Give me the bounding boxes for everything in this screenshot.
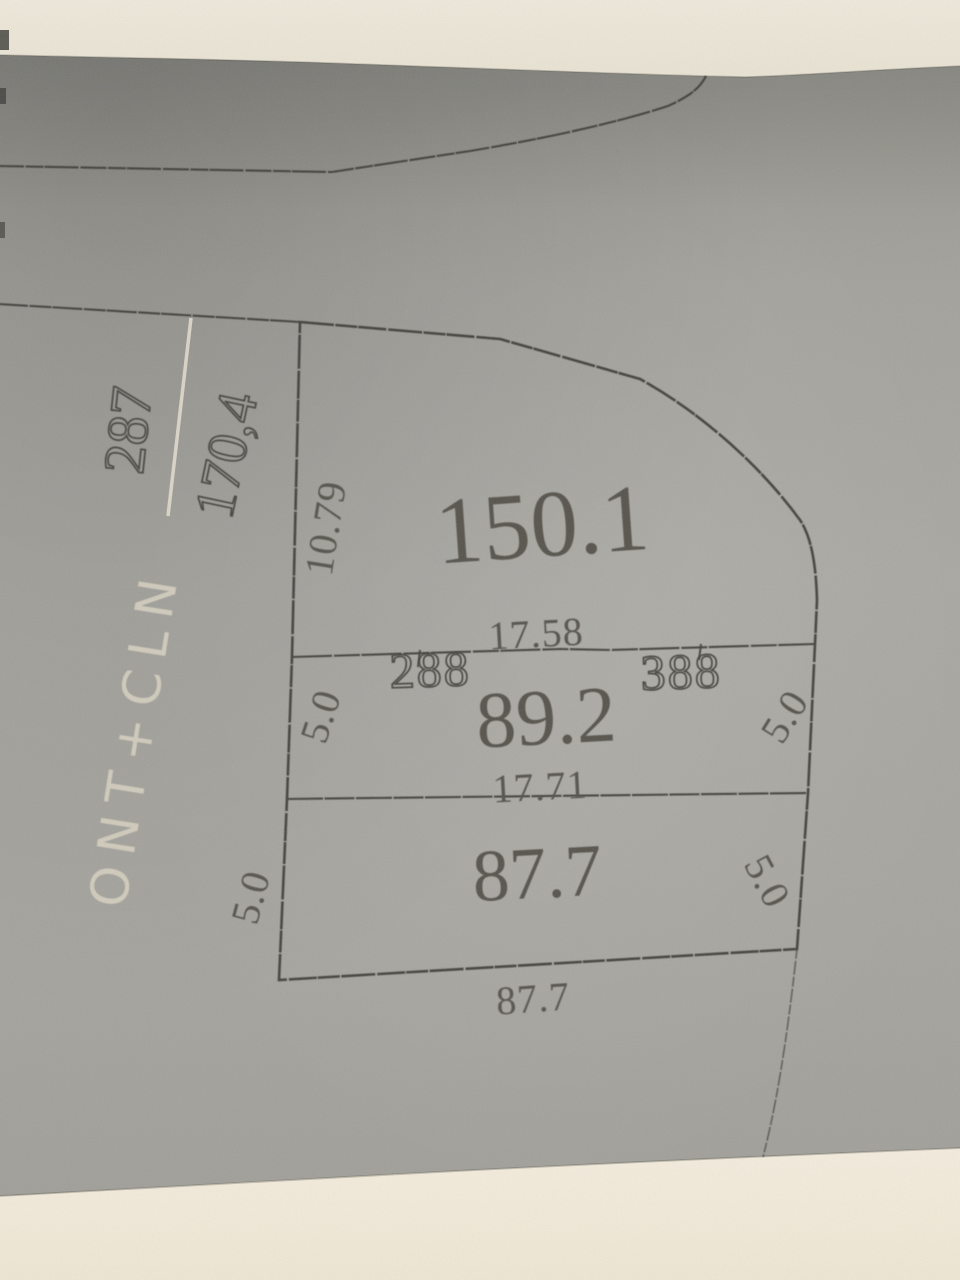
photo-grain-overlay bbox=[0, 0, 960, 1280]
survey-sketch-photo: 287 170,4 ONT+CLN 150.1 10.79 17.58 288 … bbox=[0, 0, 960, 1280]
survey-sketch-canvas: 287 170,4 ONT+CLN 150.1 10.79 17.58 288 … bbox=[0, 0, 960, 1280]
